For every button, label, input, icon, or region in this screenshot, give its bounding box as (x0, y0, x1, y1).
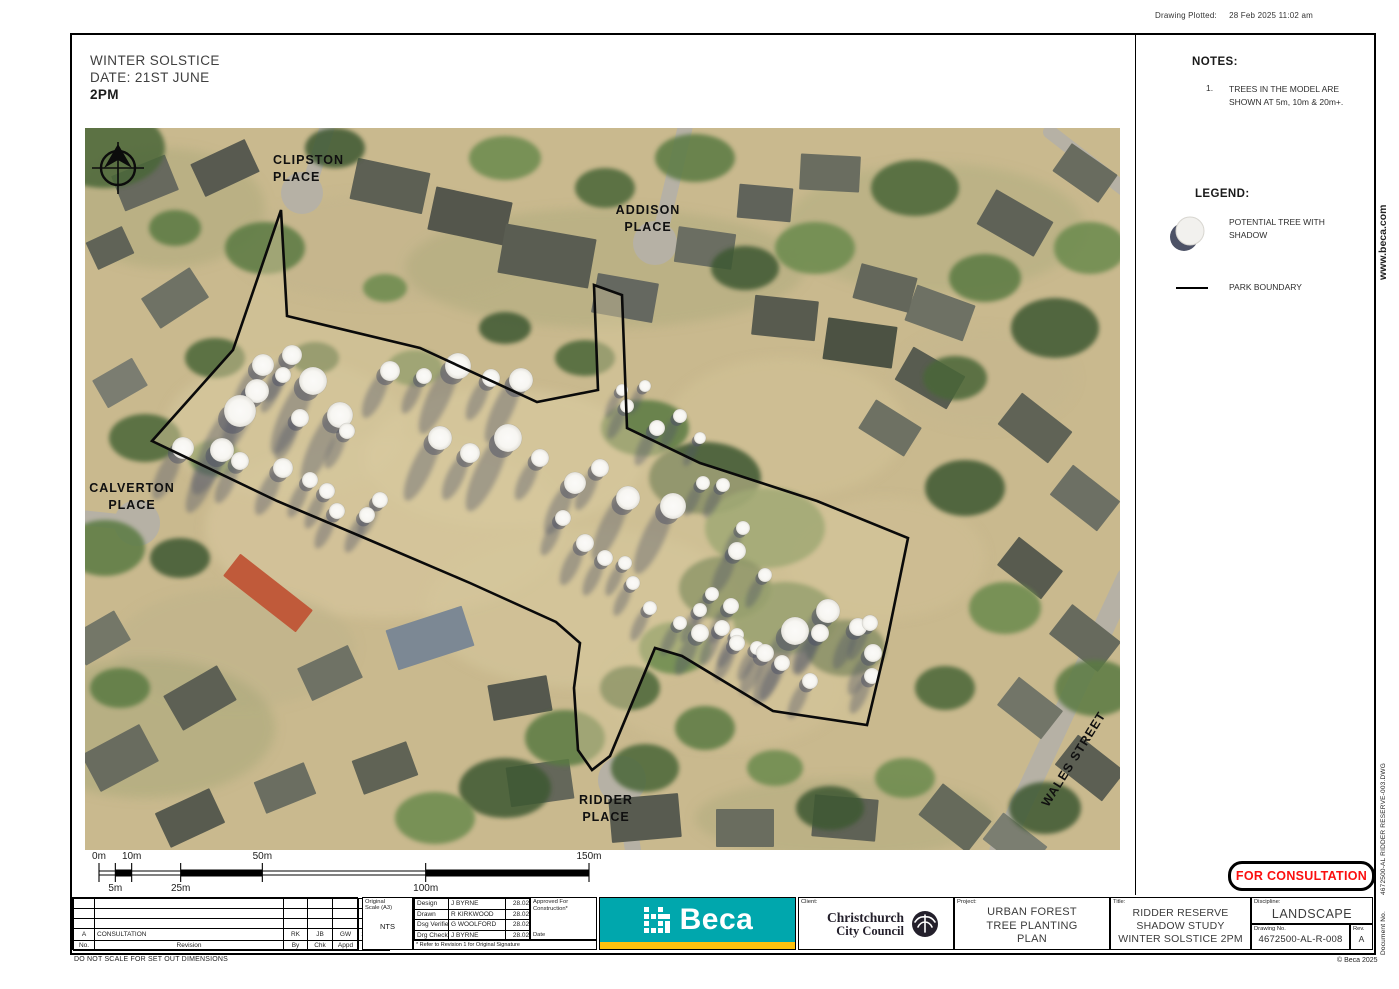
approval-name: J BYRNE (449, 899, 506, 910)
revision-cell: GW (333, 929, 359, 941)
revision-cell (284, 909, 308, 919)
tree (864, 644, 882, 662)
tree (816, 599, 840, 623)
footnote-row: * Refer to Revision 1 for Original Signa… (413, 940, 597, 950)
revision-cell: Chk (308, 941, 333, 951)
tree (359, 507, 375, 523)
consultation-stamp: FOR CONSULTATION (1228, 861, 1375, 891)
scale-tick-label: 0m (92, 851, 106, 862)
rev-box: Rev. A (1350, 924, 1373, 950)
tree (728, 542, 746, 560)
beca-logo-box: Beca (599, 897, 796, 950)
revision-cell (284, 919, 308, 929)
revision-cell: Appd (333, 941, 359, 951)
revision-cell (308, 899, 333, 909)
project-line1: URBAN FOREST (955, 906, 1109, 920)
tree (691, 624, 709, 642)
notes-heading: NOTES: (1192, 56, 1238, 68)
tree (723, 598, 739, 614)
scale-tick-label: 10m (122, 851, 141, 862)
tree (694, 432, 706, 444)
revision-cell: CONSULTATION (95, 929, 284, 941)
legend-tree-symbol-icon (1167, 211, 1211, 255)
aerial-map: CLIPSTONPLACEADDISONPLACECALVERTONPLACER… (85, 128, 1120, 850)
revision-cell (74, 909, 95, 919)
scale-bar-segment (426, 870, 589, 877)
drawing-no-label: Drawing No. (1254, 926, 1286, 932)
drawing-sheet: Drawing Plotted: 28 Feb 2025 11:02 am WI… (0, 0, 1399, 989)
svg-text:PLACE: PLACE (624, 220, 671, 234)
tree (231, 452, 249, 470)
tree (275, 367, 291, 383)
scale-box-value: NTS (363, 922, 412, 931)
revision-cell (333, 919, 359, 929)
tree (714, 620, 730, 636)
scale-tick-label: 100m (413, 883, 438, 894)
tree (380, 361, 400, 381)
tree (372, 492, 388, 508)
copyright: © Beca 2025 (1337, 957, 1378, 964)
do-not-scale-note: DO NOT SCALE FOR SET OUT DIMENSIONS (74, 956, 228, 963)
tree (618, 556, 632, 570)
scale-bar: 0m5m10m25m50m100m150m (90, 851, 605, 895)
revision-cell (74, 919, 95, 929)
legend-boundary-label: PARK BOUNDARY (1229, 282, 1302, 292)
revision-cell: A (74, 929, 95, 941)
svg-text:CLIPSTON: CLIPSTON (273, 153, 344, 167)
tree (299, 367, 327, 395)
plot-stamp: Drawing Plotted: 28 Feb 2025 11:02 am (1155, 11, 1313, 20)
tree (416, 368, 432, 384)
tree (673, 616, 687, 630)
client-logo: Christchurch City Council (801, 903, 951, 945)
tree (329, 503, 345, 519)
discipline-box: Discipline: LANDSCAPE (1251, 897, 1373, 924)
client-name-line2: City Council (836, 924, 904, 938)
beca-yellow-stripe (600, 942, 795, 949)
tree (716, 478, 730, 492)
svg-text:RIDDER: RIDDER (579, 793, 633, 807)
svg-text:PLACE: PLACE (582, 810, 629, 824)
footnote-text: * Refer to Revision 1 for Original Signa… (416, 942, 520, 948)
tree (494, 424, 522, 452)
tree (626, 576, 640, 590)
drawing-no-box: Drawing No. 4672500-AL-R-008 (1251, 924, 1350, 950)
title-label: Title: (1113, 899, 1125, 905)
client-name-line1: Christchurch (827, 910, 904, 925)
tree (811, 624, 829, 642)
tree (282, 345, 302, 365)
tree (576, 534, 594, 552)
rev-value: A (1351, 934, 1372, 944)
tree (673, 409, 687, 423)
legend-tree-label: POTENTIAL TREE WITH SHADOW (1229, 216, 1344, 241)
tree (302, 472, 318, 488)
svg-text:PLACE: PLACE (273, 170, 320, 184)
beca-logo-text: Beca (680, 905, 754, 935)
tree (428, 426, 452, 450)
tree (616, 486, 640, 510)
revision-cell (95, 909, 284, 919)
tree (460, 443, 480, 463)
approval-role: Design (415, 899, 449, 910)
consultation-stamp-text: FOR CONSULTATION (1236, 869, 1367, 883)
panel-divider (1135, 33, 1136, 895)
tree (643, 601, 657, 615)
tree (802, 673, 818, 689)
svg-text:CALVERTON: CALVERTON (89, 481, 175, 495)
tree (660, 493, 686, 519)
tree (210, 438, 234, 462)
document-no-vertical: Document No. 4672500-AL RIDDER RESERVE-0… (1380, 620, 1387, 955)
tree (339, 423, 355, 439)
approved-for-box: Approved For Construction* Date (530, 897, 597, 940)
tree (597, 550, 613, 566)
ccc-emblem-icon (912, 911, 938, 937)
scale-tick-label: 50m (253, 851, 272, 862)
rev-label: Rev. (1353, 926, 1365, 932)
tree (273, 458, 293, 478)
scale-box-label2: Scale (A3) (365, 905, 410, 911)
tree (758, 568, 772, 582)
discipline-value: LANDSCAPE (1252, 907, 1372, 921)
approval-name: J BYRNE (449, 930, 506, 941)
tree (291, 409, 309, 427)
tree (531, 449, 549, 467)
note-item-text: TREES IN THE MODEL ARE SHOWN AT 5m, 10m … (1229, 83, 1347, 108)
tree (555, 510, 571, 526)
revision-cell: No. (74, 941, 95, 951)
title-line2: SHADOW STUDY (1111, 920, 1250, 933)
note-item-number: 1. (1206, 83, 1213, 93)
tree (509, 368, 533, 392)
website-vertical: www.beca.com (1377, 160, 1389, 280)
tree (736, 521, 750, 535)
approval-role: Drawn (415, 909, 449, 920)
tree (649, 420, 665, 436)
revision-cell (284, 899, 308, 909)
scale-bar-segment (115, 870, 131, 877)
revision-cell (308, 909, 333, 919)
drawing-no-value: 4672500-AL-R-008 (1252, 934, 1349, 945)
approval-name: G WOOLFORD (449, 920, 506, 931)
scenario-time: 2PM (90, 86, 220, 103)
approvals-table: DesignJ BYRNE28.02.25DrawnR KIRKWOOD28.0… (413, 897, 530, 940)
revision-cell (333, 899, 359, 909)
approval-role: Dsg Verifier (415, 920, 449, 931)
title-line1: RIDDER RESERVE (1111, 907, 1250, 920)
svg-text:PLACE: PLACE (108, 498, 155, 512)
scenario-line2: DATE: 21ST JUNE (90, 69, 220, 86)
revision-cell (95, 919, 284, 929)
tree (774, 655, 790, 671)
scenario-caption: WINTER SOLSTICE DATE: 21ST JUNE 2PM (90, 52, 220, 103)
project-label: Project: (957, 899, 977, 905)
approval-name: R KIRKWOOD (449, 909, 506, 920)
legend-boundary-sample (1176, 287, 1208, 289)
tree (639, 380, 651, 392)
scale-bar-segment (181, 870, 263, 877)
plot-stamp-value: 28 Feb 2025 11:02 am (1229, 11, 1313, 20)
title-box: Title: RIDDER RESERVE SHADOW STUDY WINTE… (1110, 897, 1251, 950)
revision-table: ACONSULTATIONRKJBGW28.02.25No.RevisionBy… (72, 897, 358, 950)
tree (696, 476, 710, 490)
scale-tick-label: 5m (108, 883, 122, 894)
revision-cell (333, 909, 359, 919)
revision-cell: RK (284, 929, 308, 941)
revision-cell (74, 899, 95, 909)
tree (781, 617, 809, 645)
project-box: Project: URBAN FOREST TREE PLANTING PLAN (954, 897, 1110, 950)
tree (729, 635, 745, 651)
scenario-line1: WINTER SOLSTICE (90, 52, 220, 69)
tree (319, 483, 335, 499)
project-line3: PLAN (955, 933, 1109, 947)
tree (224, 395, 256, 427)
client-box: Client: Christchurch City Council (798, 897, 954, 950)
svg-text:ADDISON: ADDISON (616, 203, 681, 217)
title-line3: WINTER SOLSTICE 2PM (1111, 933, 1250, 946)
project-line2: TREE PLANTING (955, 920, 1109, 934)
tree (705, 587, 719, 601)
approved-for-label: Approved For Construction* (531, 898, 596, 914)
tree (756, 644, 774, 662)
revision-cell: Revision (95, 941, 284, 951)
tree (591, 459, 609, 477)
scale-tick-label: 150m (576, 851, 601, 862)
revision-cell (308, 919, 333, 929)
client-label: Client: (801, 899, 817, 905)
plot-stamp-label: Drawing Plotted: (1155, 11, 1217, 20)
approval-role: Drg Check (415, 930, 449, 941)
tree (862, 615, 878, 631)
revision-cell: By (284, 941, 308, 951)
scale-tick-label: 25m (171, 883, 190, 894)
approved-date-label: Date (533, 932, 545, 938)
tree (564, 472, 586, 494)
revision-cell: JB (308, 929, 333, 941)
tree (252, 354, 274, 376)
revision-cell (95, 899, 284, 909)
beca-logo-icon (642, 905, 672, 935)
tree (693, 603, 707, 617)
scale-box: Original Scale (A3) NTS (362, 897, 413, 950)
legend-heading: LEGEND: (1195, 188, 1250, 200)
discipline-label: Discipline: (1254, 899, 1280, 905)
